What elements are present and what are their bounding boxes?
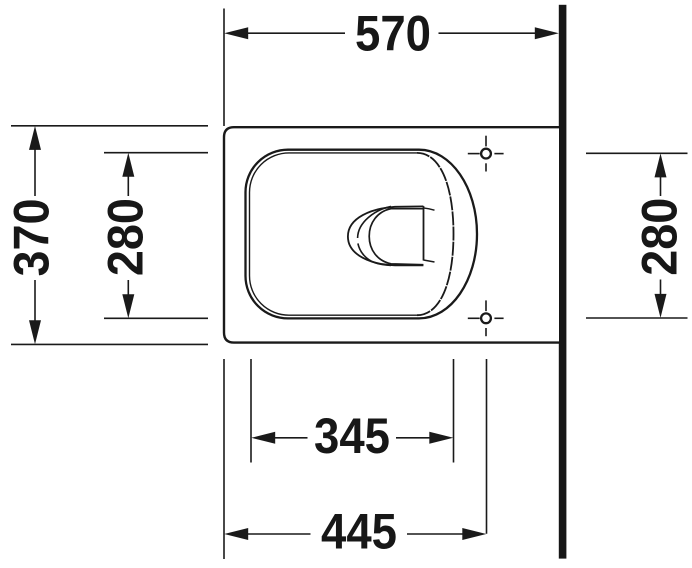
svg-text:445: 445 [321,503,397,559]
svg-text:280: 280 [98,198,154,276]
svg-text:370: 370 [4,199,60,277]
svg-text:280: 280 [632,198,688,276]
svg-text:570: 570 [355,5,431,61]
svg-text:345: 345 [314,408,390,464]
